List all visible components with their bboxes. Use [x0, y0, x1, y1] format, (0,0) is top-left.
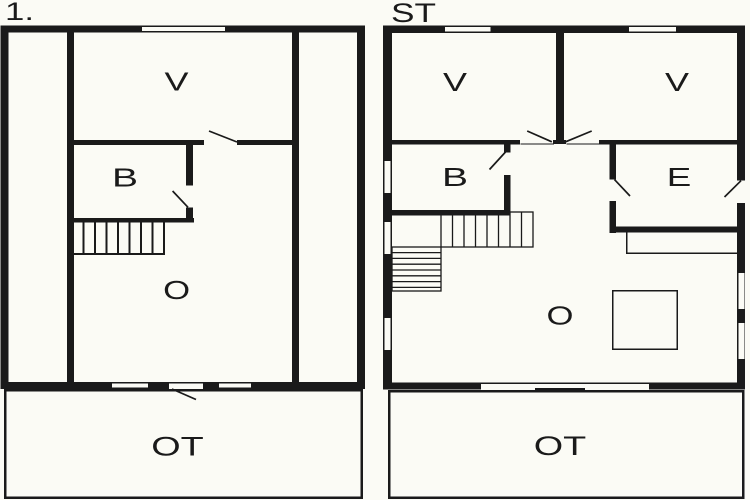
- svg-text:B: B: [442, 162, 468, 192]
- svg-text:B: B: [112, 162, 138, 192]
- svg-text:E: E: [667, 162, 692, 192]
- svg-text:O: O: [547, 301, 574, 331]
- svg-text:O: O: [163, 275, 190, 305]
- svg-text:V: V: [665, 67, 690, 97]
- svg-text:V: V: [443, 67, 468, 97]
- svg-text:V: V: [165, 67, 190, 97]
- svg-text:OT: OT: [534, 431, 587, 461]
- svg-text:ST: ST: [391, 0, 436, 28]
- svg-text:1.: 1.: [5, 0, 34, 26]
- svg-text:OT: OT: [151, 432, 204, 462]
